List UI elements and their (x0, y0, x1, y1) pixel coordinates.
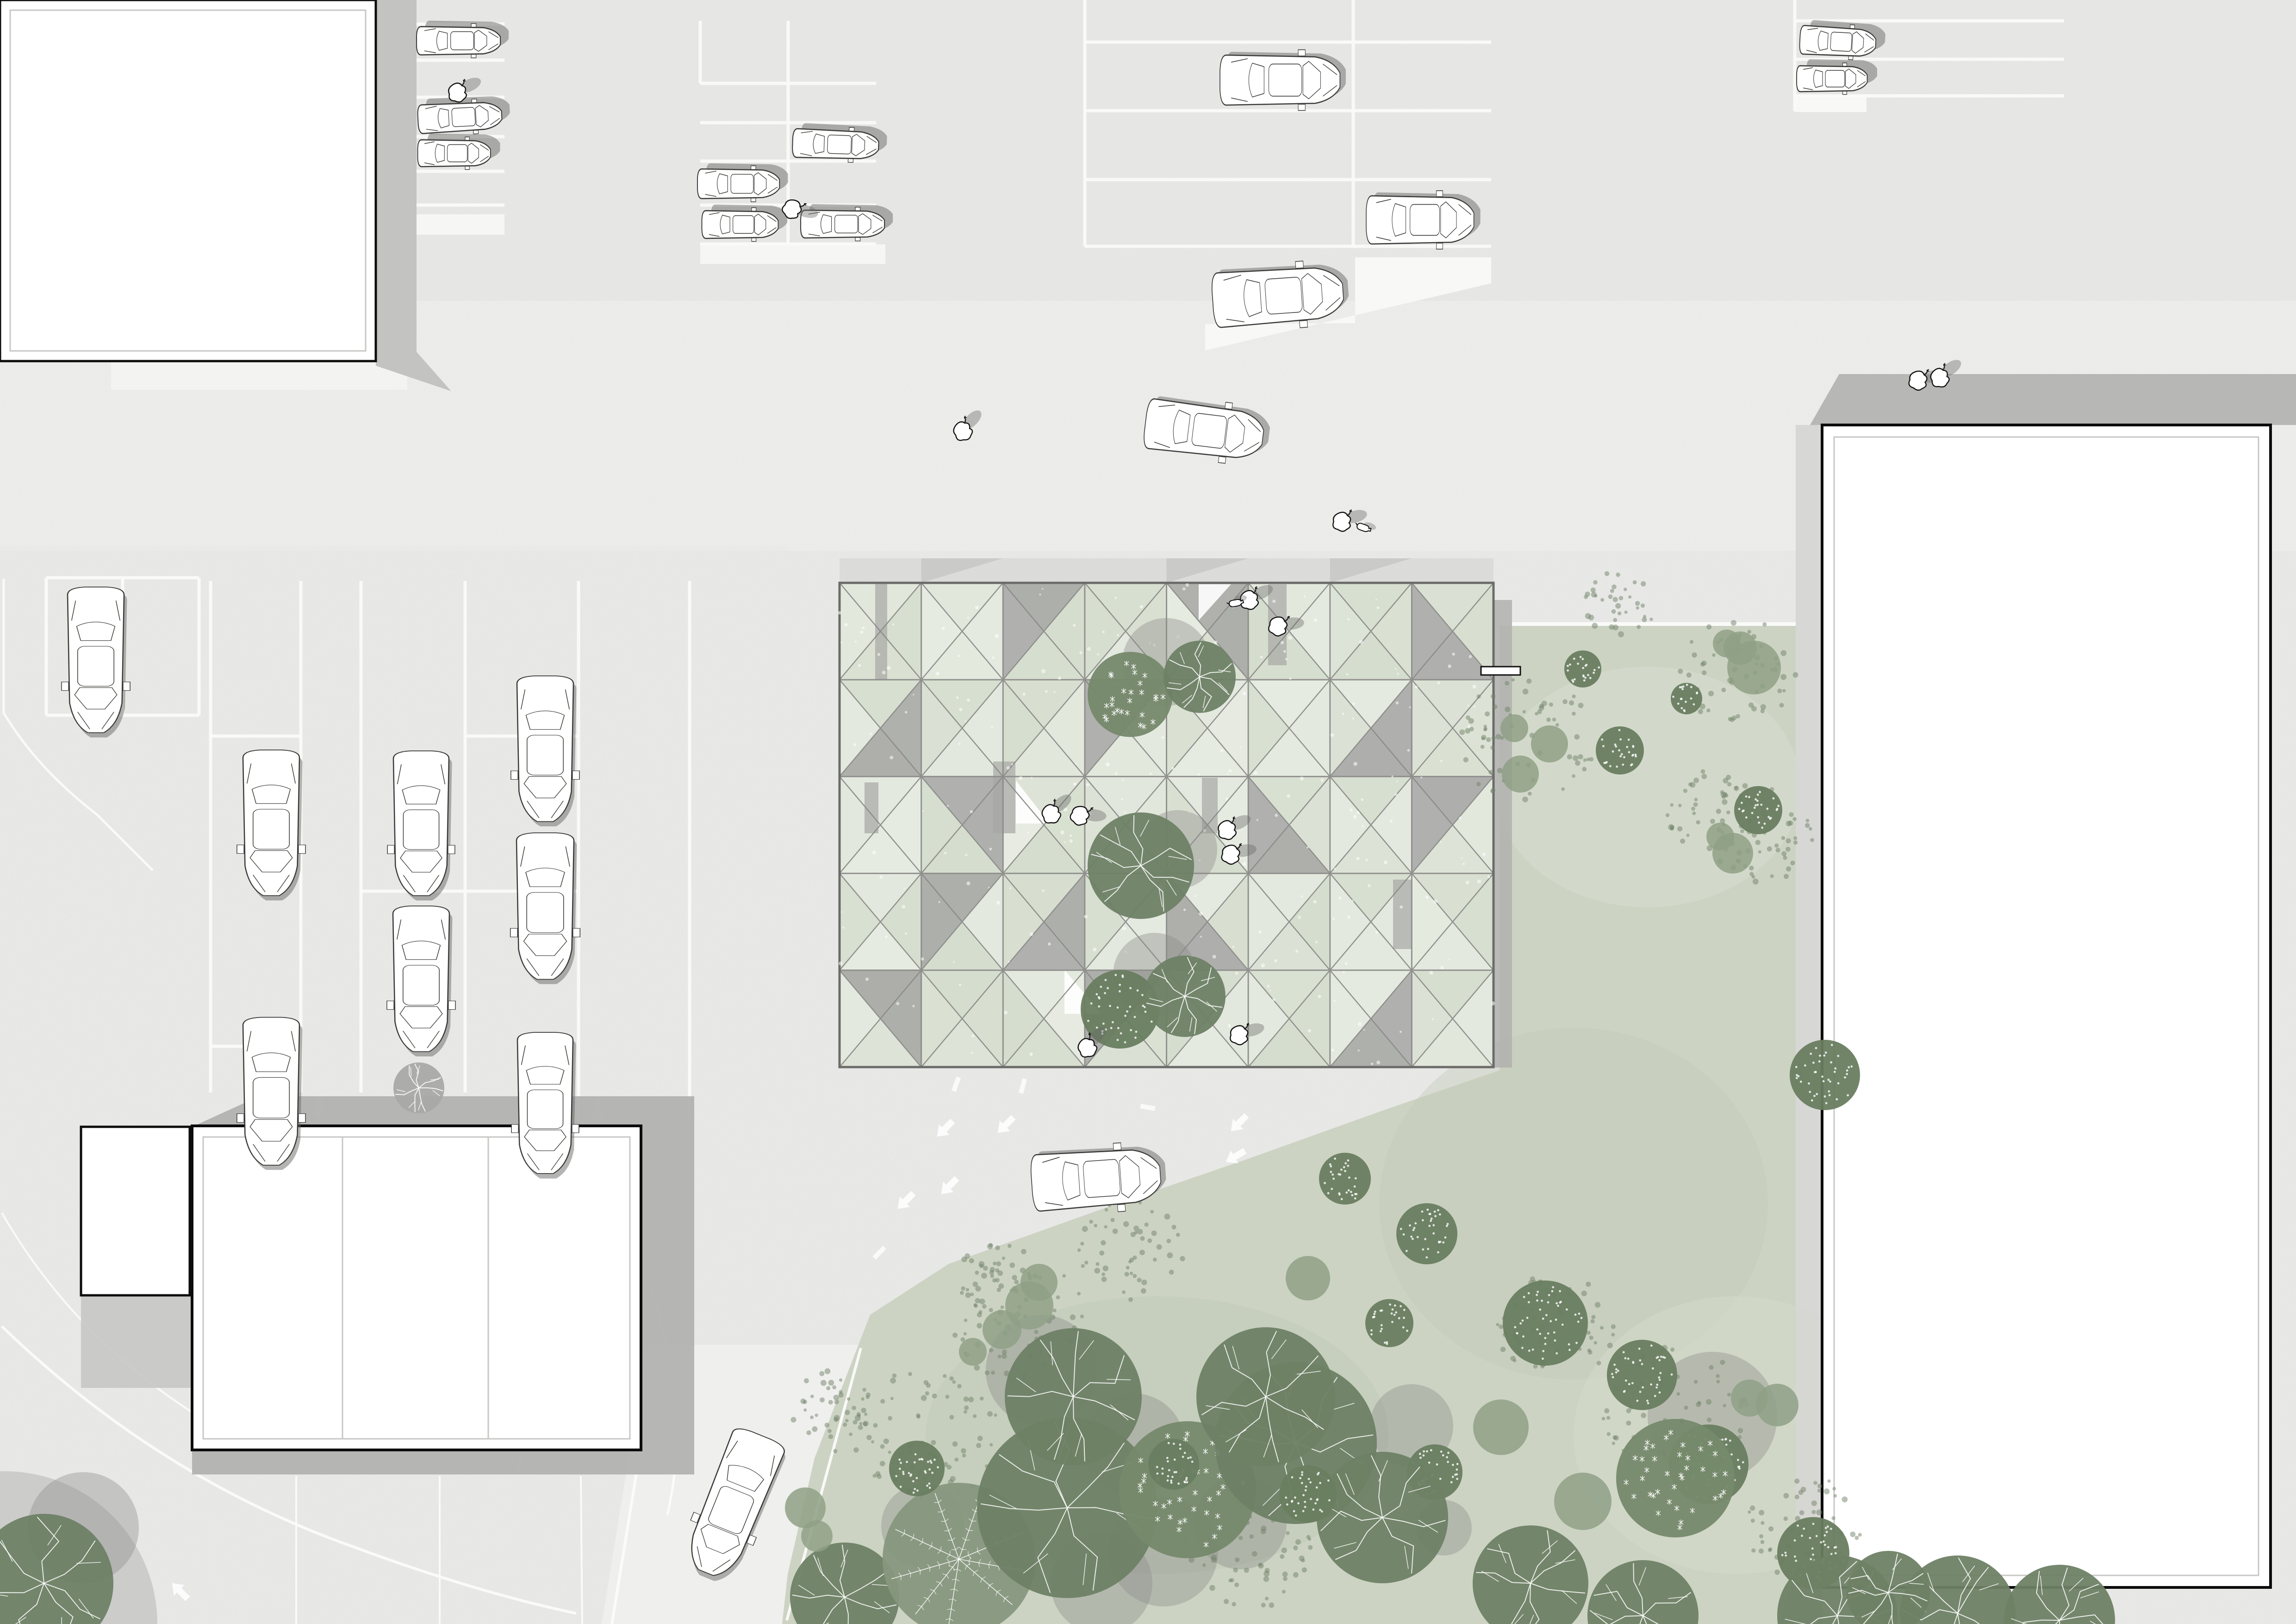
stipple-dot (1080, 1315, 1084, 1318)
tree-dot (1402, 1326, 1405, 1329)
stipple-dot (853, 1447, 859, 1452)
glass-speckle (841, 912, 842, 913)
tree-dot (1725, 1443, 1728, 1446)
stipple-dot (1726, 811, 1730, 814)
glass-speckle (1477, 880, 1481, 883)
tree-dot (1447, 1461, 1449, 1463)
stipple-dot (1712, 653, 1715, 656)
stipple-dot (1211, 1557, 1217, 1563)
glass-speckle (967, 699, 970, 702)
tree-dot (1628, 1383, 1630, 1386)
stipple-dot (1089, 1220, 1093, 1224)
stipple-dot (1228, 1579, 1232, 1582)
stipple-dot (1749, 866, 1754, 870)
tree-dot (1112, 1021, 1114, 1024)
stipple-dot (998, 1355, 1002, 1358)
tree-dot (1452, 1476, 1454, 1478)
tree-dot (1593, 672, 1595, 674)
tree-dot (1394, 1314, 1396, 1316)
car-mirror-right (752, 238, 756, 242)
tree-dot (1825, 1527, 1827, 1529)
glass-speckle (1006, 766, 1009, 769)
stipple-dot (1465, 728, 1470, 734)
stipple-dot (964, 1405, 969, 1410)
stipple-dot (1607, 1343, 1613, 1348)
tree-dot (1837, 1055, 1839, 1057)
tree-dot (1754, 806, 1756, 809)
stipple-dot (1612, 584, 1616, 589)
tree-dot (1422, 1219, 1424, 1221)
tree-dot (1124, 1041, 1126, 1043)
tree-dot (1452, 1464, 1454, 1466)
tree-dot (1690, 686, 1692, 688)
stipple-dot (1633, 580, 1637, 584)
stipple-dot (871, 1440, 874, 1443)
glass-speckle (1333, 1000, 1335, 1002)
tree-dot (1437, 1251, 1439, 1254)
tree-dot (1536, 1294, 1538, 1296)
tree-dot (1400, 1305, 1402, 1307)
stipple-dot (839, 1390, 842, 1394)
glass-speckle (1384, 861, 1388, 865)
tree-dot (1354, 1197, 1356, 1199)
stipple-dot (1792, 817, 1796, 821)
stipple-dot (1759, 1534, 1763, 1538)
tree-dot (1850, 1065, 1853, 1068)
stipple-dot (825, 1423, 830, 1428)
glass-speckle (1182, 587, 1186, 591)
tree-dot (1816, 1535, 1818, 1537)
glass-speckle (1039, 593, 1041, 595)
tree-dot (1556, 1302, 1558, 1305)
tree-dot (1191, 1461, 1194, 1463)
stipple-dot (1283, 1576, 1288, 1581)
tree-dot (1632, 745, 1634, 747)
tree-dot (1770, 817, 1772, 819)
stipple-dot (1012, 1275, 1017, 1280)
tree-crown (1088, 812, 1194, 919)
tree-dot (1321, 1511, 1323, 1513)
stipple-dot (1549, 702, 1553, 706)
tree-dot (1095, 993, 1098, 995)
glass-speckle (1030, 932, 1033, 936)
fern-tick (914, 1534, 914, 1538)
tree-dot (1825, 1102, 1828, 1105)
stipple-dot (1122, 1290, 1126, 1294)
roof-bar (993, 762, 1015, 833)
car-mirror-right (1298, 104, 1305, 111)
site-plan-stage (0, 0, 2296, 1624)
stipple-dot (1302, 1568, 1307, 1573)
building-right (1822, 425, 2271, 1587)
glass-speckle (1440, 760, 1443, 762)
tree-dot (1309, 1481, 1312, 1484)
stipple-dot (931, 1440, 936, 1445)
stipple-dot (1523, 710, 1526, 713)
tree-dot (1582, 675, 1585, 677)
car-body (1366, 191, 1474, 249)
car-mirror-left (752, 208, 756, 212)
stipple-dot (1692, 812, 1696, 815)
glass-speckle (1468, 705, 1469, 706)
tree-dot (1419, 1457, 1422, 1459)
tree-dot (1122, 976, 1124, 978)
stipple-dot (1783, 1493, 1789, 1499)
glass-speckle (971, 1035, 974, 1037)
stipple-dot (1481, 737, 1485, 740)
tree-dot (1801, 1535, 1803, 1537)
tree-canopy (1727, 641, 1781, 694)
stipple-dot (1238, 1536, 1243, 1540)
tree-dot (1537, 1291, 1539, 1293)
tree-dot (1738, 808, 1741, 810)
tree-dot (1613, 1364, 1616, 1366)
tree-crown (1164, 641, 1236, 713)
tree-dot (1784, 1552, 1786, 1554)
stipple-dot (970, 1293, 974, 1296)
stipple-dot (1491, 736, 1495, 740)
glass-speckle (1358, 1022, 1362, 1026)
glass-speckle (1314, 618, 1317, 622)
tree-dot (1447, 1223, 1449, 1225)
stipple-dot (977, 1312, 982, 1317)
stipple-dot (1832, 1487, 1836, 1491)
stipple-dot (989, 1308, 993, 1312)
car-mirror-left (855, 207, 860, 211)
stipple-dot (1573, 756, 1578, 761)
car-mirror-left (1113, 1143, 1121, 1150)
stipple-dot (1690, 640, 1693, 643)
stipple-dot (943, 1374, 946, 1378)
stipple-dot (1113, 1229, 1118, 1234)
stipple-dot (1721, 687, 1726, 692)
tree-dot (1332, 1178, 1335, 1180)
tree-dot (1757, 816, 1759, 818)
stipple-dot (1795, 1494, 1799, 1499)
tree-dot (1796, 1077, 1798, 1079)
stipple-dot (1784, 1517, 1788, 1521)
tree-dot (1808, 1082, 1810, 1085)
fern-tick (930, 1568, 930, 1572)
car-body (511, 676, 579, 822)
tree-dot (915, 1453, 917, 1455)
tree-dot (1536, 1299, 1538, 1302)
stipple-dot (997, 1270, 1003, 1276)
tree-dot (1624, 1390, 1626, 1393)
stipple-dot (812, 1426, 817, 1432)
stipple-dot (845, 1419, 849, 1423)
glass-speckle (1079, 651, 1083, 655)
tree-dot (1304, 1506, 1307, 1508)
tree-dot (1619, 755, 1622, 757)
tree-dot (1090, 1002, 1093, 1005)
stipple-dot (1123, 1221, 1129, 1227)
tree-dot (1571, 679, 1574, 681)
tree-blob (983, 1310, 1021, 1349)
tree-dot (1612, 750, 1614, 753)
stipple-dot (1094, 1224, 1097, 1228)
glass-speckle (1332, 918, 1335, 920)
glass-speckle (896, 1002, 899, 1005)
tree-dot (1846, 1073, 1848, 1075)
tree-dot (1827, 1079, 1829, 1081)
tree-dot (1627, 1358, 1630, 1360)
stipple-dot (1556, 723, 1559, 727)
stipple-dot (1612, 625, 1618, 630)
glass-speckle (912, 1005, 915, 1007)
tree-dot (1439, 1478, 1442, 1480)
tree-graycrown (393, 1062, 444, 1113)
stipple-dot (1694, 798, 1698, 801)
glass-speckle (1027, 832, 1029, 834)
tree-dot (1831, 1044, 1833, 1046)
tree-dot (1117, 1006, 1119, 1009)
tree-crown (1005, 1328, 1142, 1465)
stipple-dot (1641, 1413, 1646, 1418)
stipple-dot (1619, 596, 1624, 600)
stipple-dot (1781, 836, 1786, 840)
stipple-dot (1202, 1563, 1206, 1567)
stipple-dot (1101, 1240, 1106, 1245)
car-body (702, 208, 778, 242)
stipple-dot (947, 1465, 952, 1469)
tree-dot (1328, 1499, 1331, 1501)
tree-dot (933, 1459, 936, 1461)
stipple-dot (1014, 1280, 1019, 1284)
glass-speckle (1124, 812, 1126, 813)
stipple-dot (1552, 718, 1556, 721)
tree-dot (1419, 1453, 1421, 1455)
tree-dot (1130, 1029, 1132, 1031)
tree-dot (1145, 1011, 1147, 1013)
tree-dot (1175, 1471, 1177, 1473)
stipple-dot (1096, 1262, 1100, 1266)
glass-speckle (1171, 767, 1174, 770)
glass-speckle (1441, 966, 1444, 969)
stipple-dot (916, 1413, 920, 1418)
tree-dot (1646, 1399, 1649, 1402)
glass-speckle (1315, 941, 1318, 943)
tree-dot (1796, 1074, 1798, 1076)
stipple-dot (1034, 1330, 1038, 1334)
stipple-dot (1124, 1272, 1129, 1276)
glass-speckle (890, 756, 893, 760)
stipple-dot (1496, 1323, 1499, 1326)
glass-speckle (1162, 737, 1164, 739)
stipple-dot (1799, 1510, 1804, 1515)
tree-dot (927, 1461, 929, 1463)
tree-dot (1628, 738, 1630, 741)
tree-dot (1374, 1311, 1376, 1313)
glass-speckle (858, 664, 861, 667)
stipple-dot (820, 1398, 825, 1403)
stipple-dot (995, 1245, 1000, 1250)
tree-dot (1685, 701, 1687, 703)
glass-speckle (1214, 641, 1218, 644)
stipple-dot (1581, 1291, 1587, 1296)
glass-speckle (1140, 605, 1143, 608)
tree-canopy (1554, 1473, 1612, 1530)
tree-dot (1589, 677, 1592, 679)
car-mirror-left (573, 928, 580, 937)
tree-dot (1102, 1023, 1105, 1025)
tree-dot (1566, 1308, 1568, 1311)
glass-speckle (1029, 1053, 1033, 1056)
stipple-dot (1513, 1359, 1516, 1362)
stipple-dot (866, 1395, 870, 1399)
tree-dot (906, 1461, 908, 1463)
stipple-dot (952, 1380, 956, 1384)
glass-speckle (1226, 798, 1228, 800)
stipple-dot (884, 1438, 889, 1444)
tree-dotted (1396, 1203, 1457, 1264)
glass-speckle (1260, 656, 1263, 658)
stipple-dot (968, 1397, 974, 1402)
tree-dot (1632, 754, 1634, 756)
stipple-dot (975, 1271, 979, 1275)
stipple-dot (966, 1288, 969, 1291)
glass-speckle (862, 626, 865, 629)
tree-dot (1815, 1047, 1817, 1049)
glass-speckle (1300, 776, 1304, 781)
car-mirror-left (1298, 50, 1305, 56)
glass-speckle (1008, 961, 1010, 963)
car-outline (393, 751, 449, 896)
stipple-dot (1600, 598, 1604, 602)
stipple-dot (1157, 1244, 1162, 1250)
stipple-dot (1686, 673, 1692, 678)
tree-dot (1294, 1496, 1296, 1499)
tree-dot (1381, 1324, 1383, 1326)
stipple-dot (1716, 809, 1721, 814)
stipple-dot (1082, 1226, 1088, 1232)
stipple-dot (1767, 846, 1772, 851)
plinth-right (1796, 425, 1822, 1592)
stipple-dot (1693, 802, 1698, 807)
car-mirror-right (387, 1001, 394, 1010)
building-top-left-footprint (0, 0, 376, 361)
glass-speckle (996, 901, 1000, 905)
stipple-dot (1593, 580, 1598, 585)
tree-dot (1615, 1368, 1618, 1370)
stipple-dot (1786, 838, 1791, 843)
tree-dot (1628, 751, 1630, 753)
glass-speckle (1257, 819, 1258, 821)
stipple-dot (1567, 754, 1572, 759)
stipple-dot (1696, 820, 1700, 824)
tree-dot (1639, 1391, 1642, 1393)
tree-dot (1681, 688, 1684, 690)
tree-dot (1660, 1355, 1662, 1358)
stipple-dot (1594, 594, 1597, 598)
stipple-dot (1607, 1432, 1611, 1436)
tree-dot (1528, 1292, 1530, 1294)
tree-dot (1107, 987, 1109, 989)
glass-speckle (1491, 1001, 1495, 1006)
stipple-dot (1635, 601, 1640, 606)
tree-dot (1168, 1469, 1170, 1471)
stipple-dot (1747, 630, 1751, 634)
stipple-dot (1493, 705, 1497, 709)
fern-tick (950, 1551, 950, 1555)
stipple-dot (862, 1388, 866, 1392)
glass-speckle (1468, 725, 1471, 728)
car-outline (1220, 55, 1340, 105)
tree-dot (1308, 1478, 1310, 1480)
tree-dot (1624, 1357, 1627, 1359)
glass-speckle (1235, 972, 1238, 974)
tree-dot (1623, 756, 1625, 758)
stipple-dot (1233, 1568, 1238, 1572)
stipple-dot (1813, 1481, 1817, 1485)
tree-dot (1428, 1462, 1431, 1464)
stipple-dot (1111, 1218, 1115, 1222)
glass-speckle (1011, 763, 1013, 765)
stipple-dot (1649, 618, 1653, 621)
glass-speckle (1376, 1061, 1380, 1064)
stipple-dot (1269, 1602, 1274, 1608)
stipple-dot (977, 1323, 982, 1329)
tree-dot (1412, 1238, 1414, 1240)
apron-colA (700, 244, 885, 264)
tree-dot (1434, 1215, 1437, 1218)
stipple-dot (961, 1286, 965, 1290)
tree-blob (1554, 1473, 1612, 1530)
tree-dot (1318, 1472, 1320, 1474)
tree-dot (1370, 1329, 1373, 1331)
stipple-dot (926, 1383, 931, 1388)
glass-speckle (879, 875, 883, 879)
building-annex (81, 1127, 190, 1295)
tree-dot (1828, 1090, 1830, 1093)
stipple-dot (925, 1391, 929, 1395)
stipple-dot (1522, 797, 1528, 803)
stipple-dot (1700, 769, 1705, 774)
building-right-footprint (1822, 425, 2271, 1587)
tree-dot (1403, 1309, 1406, 1311)
tree-canopy (1279, 1465, 1337, 1523)
tree-dot (1301, 1474, 1303, 1476)
glass-speckle (1228, 1024, 1230, 1026)
stipple-dot (1209, 1585, 1215, 1591)
tree-dot (1577, 1321, 1580, 1323)
tree-dot (1677, 703, 1680, 705)
tree-dot (1126, 1010, 1128, 1012)
tree-dot (1813, 1095, 1816, 1097)
tree-dot (1581, 658, 1584, 660)
tree-dot (1834, 1068, 1836, 1070)
stipple-dot (1723, 1404, 1726, 1407)
stipple-dot (864, 1412, 867, 1416)
tree-dot (1137, 989, 1139, 992)
tree-dot (1098, 997, 1101, 999)
building-annex-footprint (81, 1127, 190, 1295)
glass-speckle (1391, 775, 1394, 778)
stipple-dot (1293, 1572, 1299, 1578)
stipple-dot (1505, 706, 1510, 712)
tree-dot (1521, 1347, 1524, 1349)
stipple-dot (828, 1434, 834, 1439)
glass-speckle (942, 627, 945, 630)
site-plan-canvas (0, 0, 2296, 1624)
tree-canopy (1502, 756, 1539, 793)
stipple-dot (996, 1262, 1002, 1267)
tree-dot (1528, 1301, 1530, 1303)
tree-dot (1638, 1348, 1641, 1350)
tree-dot (1135, 1031, 1138, 1033)
glass-speckle (1272, 600, 1276, 603)
stipple-dot (1512, 678, 1515, 681)
